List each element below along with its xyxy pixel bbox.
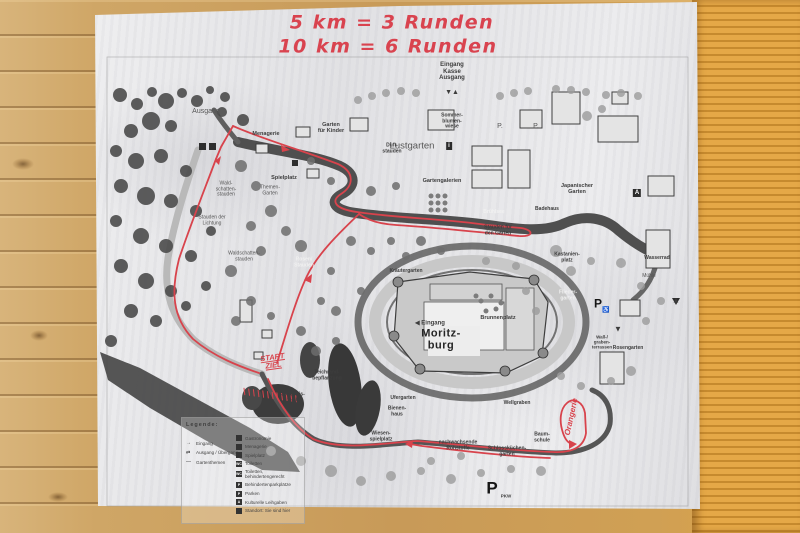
paper-map [0, 0, 800, 533]
legend-item-icon: WC [236, 461, 242, 467]
legend-item-label: Toiletten, behindertengerecht [245, 469, 304, 479]
legend-item-icon: → [186, 440, 193, 446]
legend-item-icon: A [236, 499, 242, 505]
legend-item-icon: WC [236, 471, 242, 477]
legend-item-icon [236, 444, 242, 450]
legend-item-label: Kulturelle Leihgaben [245, 500, 287, 505]
wood-slat-strip [692, 0, 800, 533]
legend-item: Standort: Sie sind hier [236, 508, 304, 514]
legend-item-icon: P [236, 491, 242, 497]
legend-title: Legende: [186, 422, 218, 428]
photo-stage: 5 km = 3 Runden10 km = 6 RundenEingang K… [0, 0, 800, 533]
wood-knot [30, 330, 48, 341]
legend-item-label: Parken [245, 491, 260, 496]
legend-item: Gastronomie [236, 435, 304, 441]
legend-item: PBehindertenparkplätze [236, 482, 304, 488]
legend-item: AKulturelle Leihgaben [236, 499, 304, 505]
legend-item-label: Ausgang / Übergang [196, 450, 238, 455]
legend-item-label: Eingang [196, 441, 213, 446]
legend-item: ⇄Ausgang / Übergang [186, 450, 238, 456]
legend-right: GastronomieMenagerieSpielplatzWCToilette… [236, 435, 304, 516]
legend-item-label: Menagerie [245, 444, 267, 449]
legend-item-icon: ⇄ [186, 450, 193, 456]
legend-item: WCToiletten, behindertengerecht [236, 469, 304, 479]
legend-item-icon: P [236, 482, 242, 488]
legend-item: —Gartenthemen [186, 459, 238, 465]
legend-item: Spielplatz [236, 452, 304, 458]
legend-item-label: Standort: Sie sind hier [245, 508, 290, 513]
legend-item-label: Gartenthemen [196, 460, 225, 465]
legend-item: WCToiletten [236, 461, 304, 467]
legend-item-icon [236, 508, 242, 514]
legend-item-icon [236, 435, 242, 441]
wood-knot [12, 158, 34, 170]
legend: Legende: →Eingang⇄Ausgang / Übergang—Gar… [181, 417, 305, 524]
legend-item-label: Toiletten [245, 461, 262, 466]
legend-item-icon: — [186, 459, 193, 465]
wood-knot [48, 492, 68, 502]
legend-item-label: Spielplatz [245, 453, 265, 458]
legend-left: →Eingang⇄Ausgang / Übergang—Gartenthemen [186, 440, 238, 469]
legend-item: →Eingang [186, 440, 238, 446]
legend-item: Menagerie [236, 444, 304, 450]
legend-item: PParken [236, 491, 304, 497]
legend-item-label: Gastronomie [245, 436, 271, 441]
legend-item-icon [236, 452, 242, 458]
legend-item-label: Behindertenparkplätze [245, 482, 291, 487]
